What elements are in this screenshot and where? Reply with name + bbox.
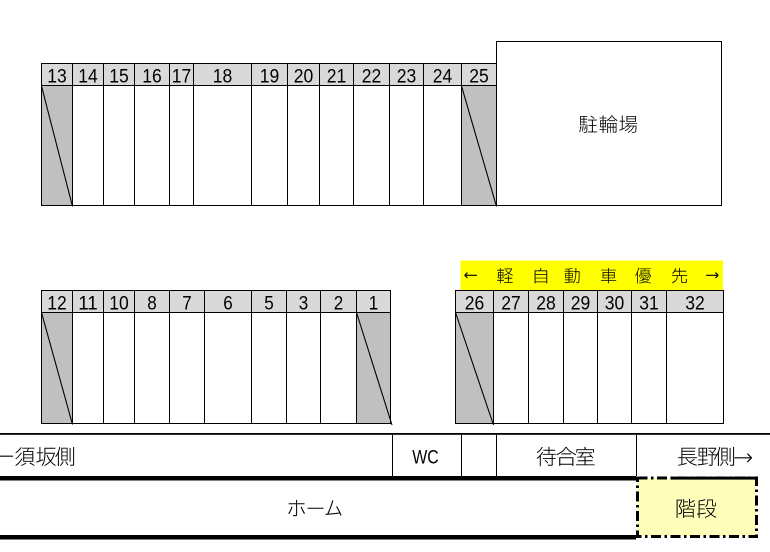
- svg-text:13: 13: [47, 67, 67, 88]
- svg-text:7: 7: [182, 294, 192, 315]
- svg-text:17: 17: [172, 67, 192, 88]
- svg-text:28: 28: [536, 294, 556, 315]
- svg-text:19: 19: [260, 67, 280, 88]
- svg-text:18: 18: [213, 67, 233, 88]
- svg-text:3: 3: [299, 294, 309, 315]
- svg-text:26: 26: [465, 294, 485, 315]
- svg-text:29: 29: [571, 294, 591, 315]
- svg-text:8: 8: [147, 294, 157, 315]
- svg-text:22: 22: [362, 67, 382, 88]
- svg-text:15: 15: [109, 67, 129, 88]
- svg-text:20: 20: [294, 67, 314, 88]
- svg-text:5: 5: [264, 294, 274, 315]
- svg-text:WC: WC: [412, 448, 439, 469]
- svg-text:1: 1: [369, 294, 379, 315]
- svg-text:21: 21: [327, 67, 347, 88]
- svg-text:6: 6: [223, 294, 233, 315]
- svg-text:16: 16: [142, 67, 162, 88]
- svg-text:27: 27: [501, 294, 521, 315]
- svg-text:23: 23: [397, 67, 417, 88]
- svg-text:12: 12: [47, 294, 67, 315]
- svg-text:32: 32: [685, 294, 705, 315]
- svg-text:11: 11: [78, 294, 98, 315]
- svg-text:25: 25: [469, 67, 489, 88]
- svg-text:30: 30: [605, 294, 625, 315]
- svg-text:31: 31: [639, 294, 659, 315]
- svg-text:2: 2: [334, 294, 344, 315]
- svg-text:10: 10: [109, 294, 129, 315]
- svg-text:14: 14: [78, 67, 98, 88]
- svg-text:24: 24: [433, 67, 453, 88]
